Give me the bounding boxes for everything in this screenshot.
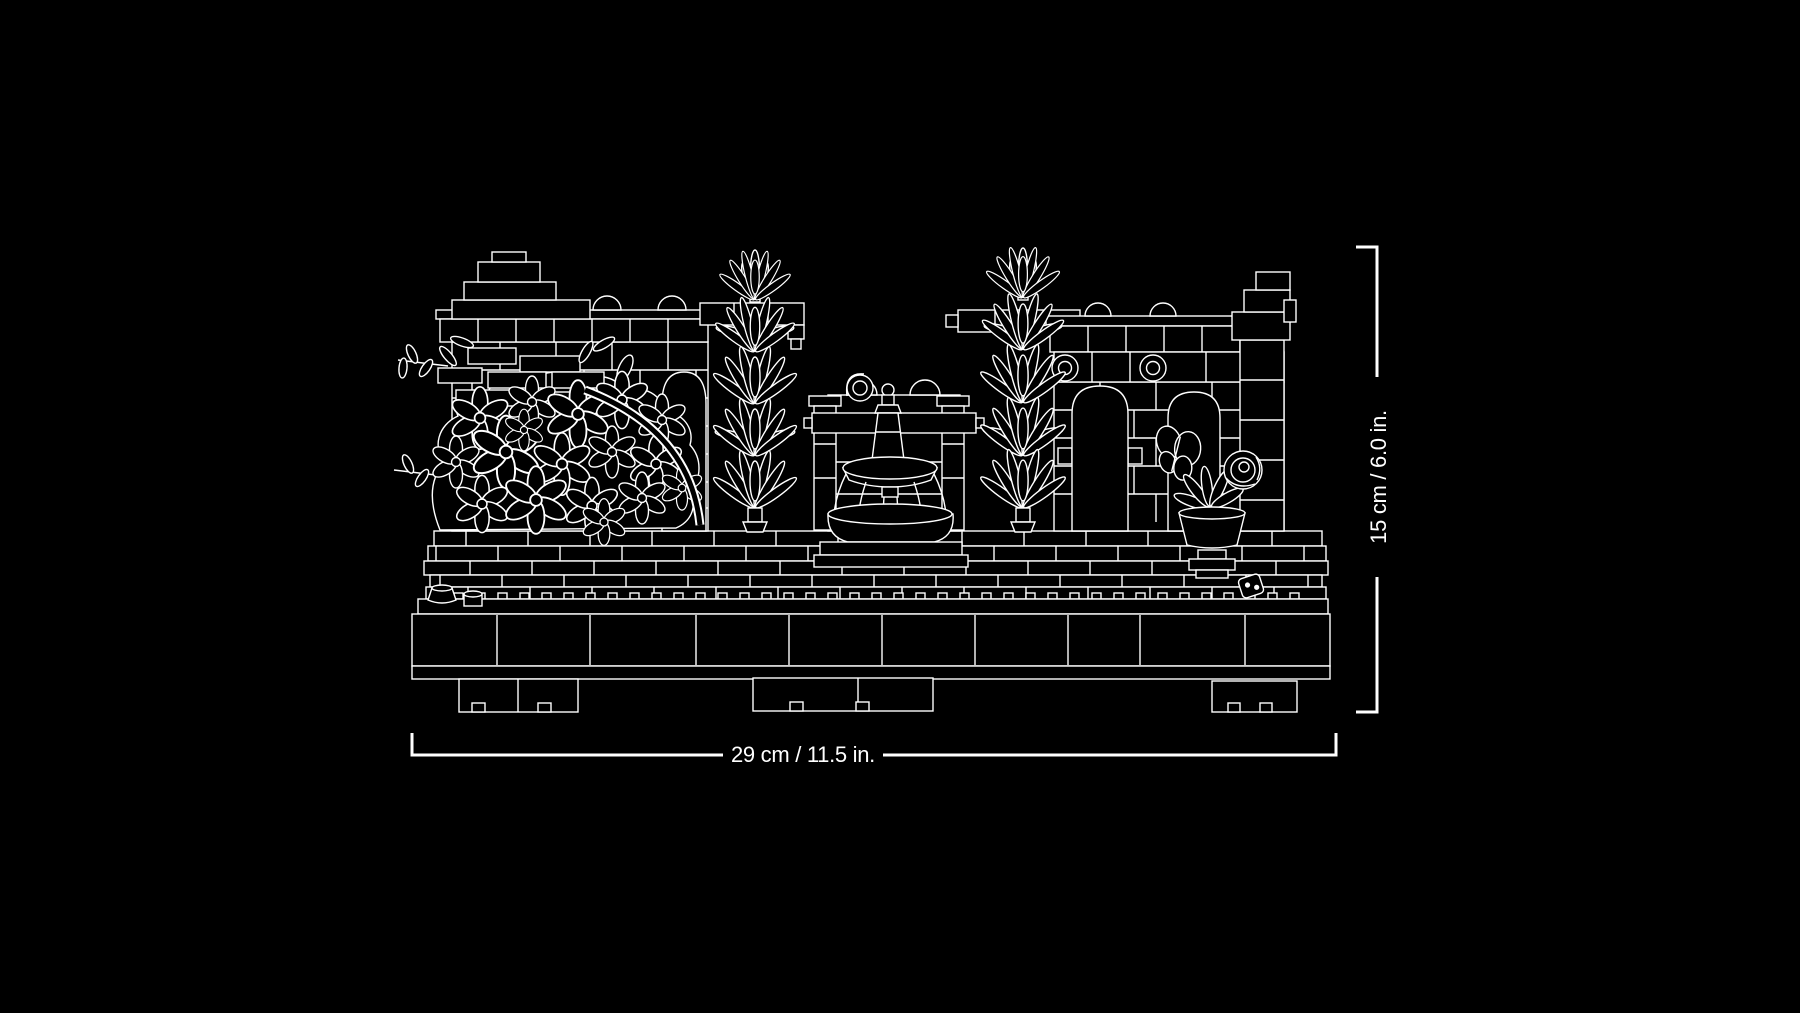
wall-crenellation bbox=[658, 296, 686, 310]
baseplate-foot-center bbox=[753, 678, 933, 711]
wall-crenellation bbox=[1085, 303, 1111, 316]
ring-medallion bbox=[1140, 355, 1166, 381]
wall-crenellation bbox=[1150, 303, 1176, 316]
product-dimension-illustration: 15 cm / 6.0 in. 29 cm / 11.5 in. bbox=[0, 0, 1800, 1013]
arch-niche bbox=[1072, 386, 1128, 531]
shell-ornament bbox=[847, 374, 873, 401]
height-dimension: 15 cm / 6.0 in. bbox=[1356, 247, 1391, 712]
width-dimension-label: 29 cm / 11.5 in. bbox=[731, 742, 875, 767]
fountain-crenellation bbox=[910, 380, 940, 395]
wall-crenellation bbox=[593, 296, 621, 310]
baseplate-foot-left bbox=[459, 679, 578, 712]
baseplate-foot-right bbox=[1212, 681, 1297, 712]
rose-bloom bbox=[1224, 451, 1262, 489]
height-dimension-label: 15 cm / 6.0 in. bbox=[1366, 410, 1391, 544]
cypress-tree-left bbox=[711, 250, 799, 532]
width-dimension: 29 cm / 11.5 in. bbox=[412, 733, 1336, 767]
flower-pot bbox=[1179, 507, 1245, 578]
